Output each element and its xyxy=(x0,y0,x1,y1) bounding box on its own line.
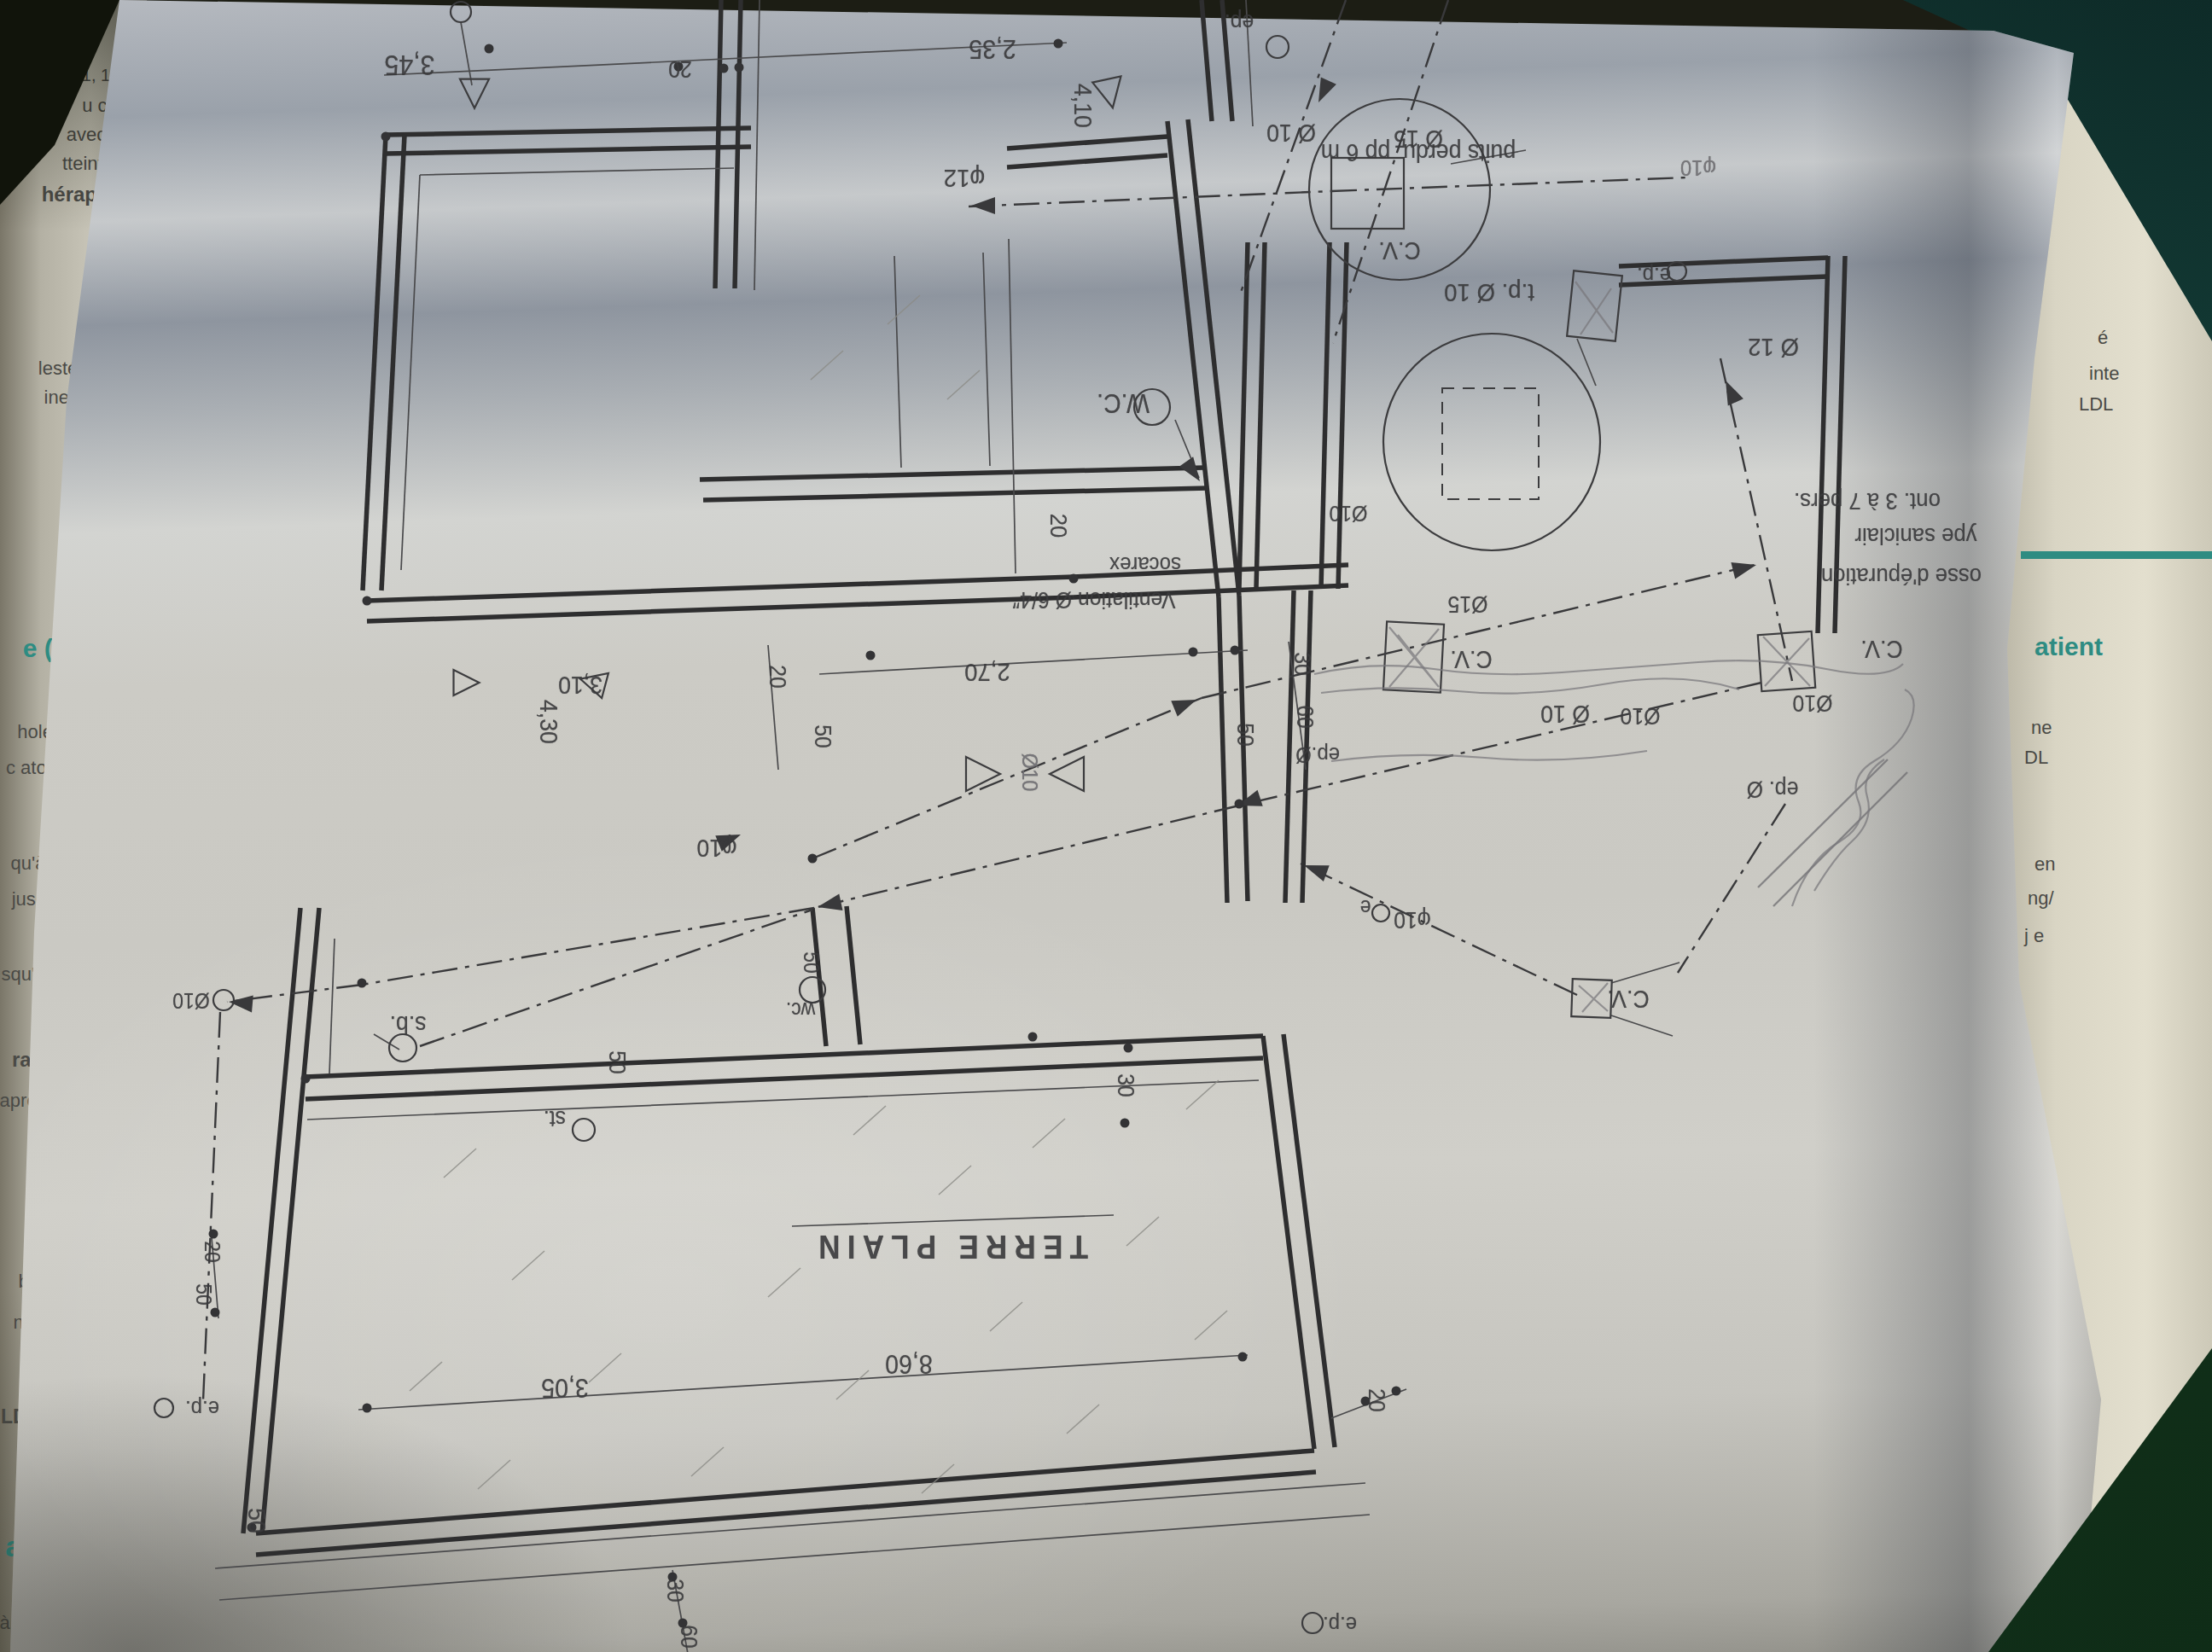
plan-label: φ12 xyxy=(944,164,986,193)
plan-label: C.V. xyxy=(1378,236,1420,265)
plan-label: Ø 12 xyxy=(1748,333,1799,362)
plan-label: φ10 xyxy=(1394,906,1431,933)
plan-label: 20 xyxy=(764,665,790,689)
plan-label: ep. Ø xyxy=(1747,776,1799,802)
plan-label: φ10 xyxy=(697,834,737,862)
plan-label: ep. xyxy=(1225,9,1254,35)
plan-label: 50 xyxy=(191,1283,216,1306)
plan-label: Ø 10 xyxy=(1266,119,1316,147)
photo-stage: n211, 115u choavec artteints ehérapeutle… xyxy=(0,0,2212,1652)
plan-label: 8,60 xyxy=(885,1348,933,1379)
plan-label: s.b. xyxy=(389,1010,426,1038)
plan-label: ont. 3 à 7 pers. xyxy=(1794,487,1941,515)
plan-label: Ø 10 xyxy=(1540,700,1590,728)
plan-label: Ventilation Ø 6/4″ xyxy=(1012,586,1175,613)
plan-label: C.V. xyxy=(1607,985,1649,1013)
plan-label: C.V. xyxy=(1860,635,1902,663)
plan-label: 3,10 xyxy=(558,671,602,699)
plan-label: osse d'épuration xyxy=(1821,562,1982,590)
plan-label: e.p. xyxy=(185,1395,219,1422)
plan-label: e.p. xyxy=(1323,1611,1357,1637)
plan-label: 30 xyxy=(1289,652,1315,676)
plan-label: 2,70 xyxy=(964,658,1010,687)
plan-label: TERRE PLAIN xyxy=(812,1228,1088,1265)
plan-label: e.p. xyxy=(1637,262,1671,288)
plan-label: W.C. xyxy=(1097,387,1150,418)
plan-label: 50 xyxy=(799,951,824,974)
plan-label: 2,35 xyxy=(969,33,1016,64)
plan-label: 30 xyxy=(661,1579,688,1603)
plan-label: Ø10 xyxy=(172,988,209,1013)
plan-labels-layer: ep.Ø 10Ø 15C.V.puits perdu pp 6 m2,35203… xyxy=(0,0,2212,1652)
plan-label: socarex xyxy=(1109,551,1181,578)
plan-label: φ10 xyxy=(1680,154,1716,181)
plan-label: Ø10 xyxy=(1793,689,1833,716)
plan-label: st. xyxy=(544,1105,566,1131)
plan-label: 30 xyxy=(1112,1073,1138,1097)
plan-label: C.V. xyxy=(1450,645,1492,673)
plan-label: Ø10 xyxy=(1329,500,1367,526)
plan-label: 3,45 xyxy=(384,49,434,81)
plan-label: wc. xyxy=(786,998,816,1022)
plan-label: 20 xyxy=(1363,1388,1389,1412)
plan-label: 3,05 xyxy=(541,1372,589,1403)
plan-label: Ø15 xyxy=(1448,590,1488,617)
plan-label: t.p. Ø 10 xyxy=(1444,278,1534,307)
plan-label: 50 xyxy=(242,1508,271,1533)
plan-label: 4,30 xyxy=(534,700,562,744)
plan-label: ype saniclair xyxy=(1854,522,1976,550)
plan-label: Ø10 xyxy=(1016,753,1043,791)
plan-label: 50 xyxy=(603,1050,630,1074)
plan-label: puits perdu pp 6 m xyxy=(1321,138,1516,166)
plan-label: Ø10 xyxy=(1621,702,1661,729)
plan-label: ep.Ø xyxy=(1295,742,1340,768)
plan-label: 60 xyxy=(675,1625,701,1649)
plan-label: 20 xyxy=(668,55,692,82)
plan-label: 60 xyxy=(1291,705,1318,729)
plan-label: 20 xyxy=(200,1241,224,1263)
plan-label: 20 xyxy=(1045,514,1072,538)
plan-label: 50 xyxy=(809,724,835,748)
plan-label: 4,10 xyxy=(1068,84,1097,128)
plan-label: e xyxy=(1360,895,1371,920)
plan-label: 50 xyxy=(1231,723,1258,747)
